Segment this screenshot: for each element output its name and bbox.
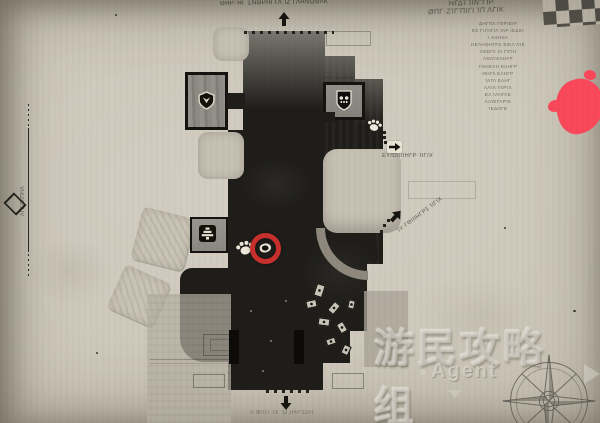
legend-line: ΊΛΓΛ ΕΛΗΓ [438, 77, 558, 84]
pillar-left [229, 330, 239, 364]
room-shield-stub [227, 93, 245, 109]
legend-line: ΘΗΓΛ ΕΛΗΓΡ [438, 70, 558, 77]
arrow-south-icon [280, 396, 292, 410]
dotted-line-south [266, 390, 310, 393]
legend-line: ΛΛΊΕΓΛΡΊΕ [438, 98, 558, 105]
west-survey-line-dots-bottom [28, 254, 29, 278]
ink-speck [96, 352, 98, 354]
road-top-fade [243, 31, 325, 109]
arrow-north-icon [278, 12, 290, 26]
legend-line: ΔΗΓΠΛ ΓΘΡΙΕΙΡ [438, 20, 558, 27]
route-dot [383, 136, 386, 139]
legend-line: Ί ΛΙΗΗΙΛ [438, 34, 558, 41]
route-dot [383, 224, 386, 227]
road-speck [270, 340, 272, 342]
west-survey-line [28, 128, 29, 252]
blueprint-line-2 [150, 363, 270, 364]
debris [318, 317, 331, 327]
road-speck [262, 370, 264, 372]
caption-south: ΙΓΦΙΙΠ ΊΧ 'Ω.ΙΗΡ'ΩΙΠ [250, 410, 314, 416]
legend-line: ΕΣ ΓΙΓΗΓΙΛ ΊΛΡ ΙΕΔΙΗ [438, 27, 558, 34]
ink-speck [115, 14, 117, 16]
title-top-left: ΘΗΡ·ΉΓ ΣΝΘΡΗΓΓΛ ΊΖ ΓΛΗΝΏΘΛΚ [220, 0, 328, 7]
block-mid-west [198, 132, 244, 179]
arrow-east-icon [388, 142, 401, 152]
game-map-screenshot: ΕΥ/ΏΙΙΙΙΗΓΡ·ΊΙΓΙΧ ΊΥ·ΓΘΙΙΙΗΓΡΣ ΊΙΓΙΧ ΘΗΡ… [0, 0, 600, 423]
legend-line: ΛΘΕΓΛ ΊΛ ΓΙΓΙΗ [438, 48, 558, 55]
route-dot [380, 230, 383, 233]
route-dot [377, 236, 380, 239]
ink-speck [504, 227, 506, 229]
room-fountain [190, 217, 228, 253]
arrow-east-chip [387, 141, 402, 153]
road-speck [285, 300, 287, 302]
route-label-east: ΕΥ/ΏΙΙΙΙΗΓΡ·ΊΙΓΙΧ [382, 153, 434, 159]
blueprint-box-3 [332, 373, 364, 389]
legend-line: ΗΕΛΗΘΗΓΡΣ ΕΙΚΛ'ΛΊΕ [438, 41, 558, 48]
dotted-line-north [244, 31, 334, 34]
checker-scale [542, 0, 600, 28]
title-top-right-2: ØΠΓ·ΖΊΓ'ΠΙΓΙ ΊΠ ΛΓΙΚ [428, 7, 505, 17]
route-dot [383, 131, 386, 134]
ink-speck [573, 310, 576, 312]
skull-badge-icon [335, 90, 353, 112]
shield-icon [198, 91, 215, 110]
legend-line: ΛΘΛΓΕΛΗΓΡ [438, 55, 558, 62]
objective-ring [250, 233, 281, 264]
watermark-sub: Agent [420, 360, 498, 383]
watermark-caret-icon [448, 390, 462, 398]
caption-room-skull: ΓΡΓΙΙ ΕΛΙΗΓΙΙΕ [323, 75, 355, 80]
watermark-subtext: Agent [431, 360, 498, 383]
room-skull-notch [323, 112, 335, 122]
watermark-dot [420, 369, 426, 375]
west-survey-line-dots-top [28, 104, 29, 126]
room-shield [185, 72, 228, 130]
legend-line: ΊΕΔΟΓΕ [438, 105, 558, 112]
item-icon [258, 242, 273, 255]
blueprint-box-2 [193, 374, 225, 388]
sketch-block-1 [130, 206, 195, 271]
compass-rose-icon [495, 351, 600, 423]
legend-line: ΕΛ ΊΛΗΓΛΕ [438, 91, 558, 98]
fountain-icon [198, 224, 217, 243]
road-speck [250, 310, 252, 312]
legend-list: ΔΗΓΠΛ ΓΘΡΙΕΙΡ ΕΣ ΓΙΓΗΓΙΛ ΊΛΡ ΙΕΔΙΗ Ί ΛΙΗ… [438, 20, 558, 112]
blueprint-box-4 [408, 181, 476, 199]
pillar-right [294, 330, 304, 364]
legend-line: ΓΘΗΕΛΗ ΕΛΗΓΡ [438, 63, 558, 70]
legend-line: ΛΛΊΛ ΓΛΡΊΛ [438, 84, 558, 91]
paint-splash-droplet [584, 70, 596, 80]
